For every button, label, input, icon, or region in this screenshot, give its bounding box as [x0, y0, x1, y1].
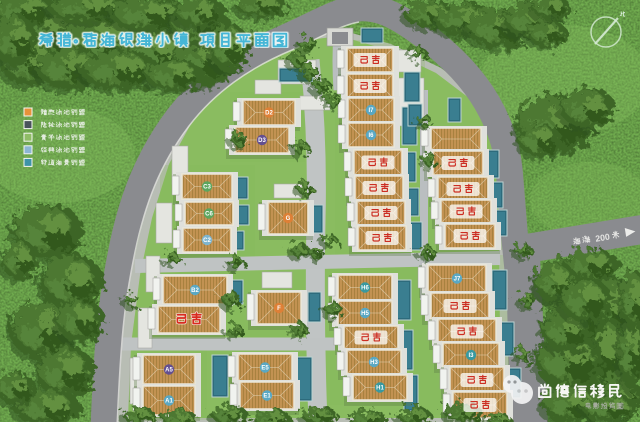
svg-text:E5: E5 [261, 366, 269, 372]
svg-text:E1: E1 [263, 394, 271, 400]
svg-text:F: F [277, 306, 281, 312]
svg-text:D3: D3 [258, 138, 266, 144]
svg-text:C2: C2 [203, 238, 211, 244]
svg-text:D2: D2 [265, 111, 273, 117]
svg-text:H3: H3 [370, 360, 378, 366]
svg-text:C6: C6 [205, 212, 213, 218]
svg-text:I6: I6 [368, 133, 374, 139]
svg-text:H1: H1 [376, 386, 384, 392]
svg-text:A1: A1 [165, 399, 173, 405]
svg-text:B2: B2 [191, 288, 199, 294]
svg-text:I3: I3 [468, 353, 474, 359]
svg-text:H5: H5 [361, 311, 369, 317]
svg-text:I7: I7 [368, 108, 374, 114]
svg-text:H6: H6 [361, 286, 369, 292]
svg-text:C3: C3 [203, 185, 211, 191]
svg-text:G: G [286, 216, 291, 222]
svg-text:A5: A5 [165, 368, 173, 374]
svg-text:J7: J7 [454, 277, 461, 283]
